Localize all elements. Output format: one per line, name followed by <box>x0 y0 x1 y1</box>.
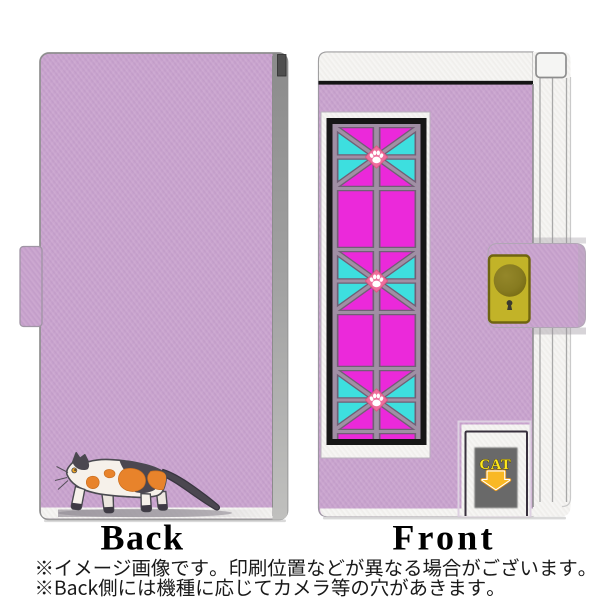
svg-text:Front: Front <box>392 517 495 557</box>
svg-text:Back: Back <box>100 517 184 557</box>
